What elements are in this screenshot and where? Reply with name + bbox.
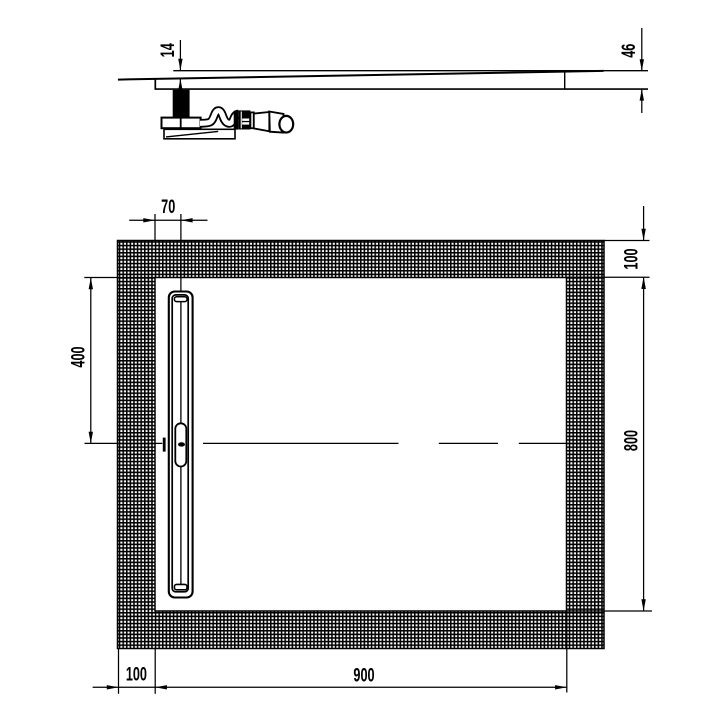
svg-text:100: 100 [621, 248, 642, 269]
svg-text:46: 46 [618, 44, 639, 58]
svg-text:800: 800 [621, 430, 642, 451]
svg-text:400: 400 [68, 346, 89, 367]
svg-text:900: 900 [353, 665, 374, 686]
svg-text:14: 14 [157, 43, 178, 58]
svg-text:100: 100 [126, 664, 147, 685]
svg-text:70: 70 [161, 196, 175, 217]
